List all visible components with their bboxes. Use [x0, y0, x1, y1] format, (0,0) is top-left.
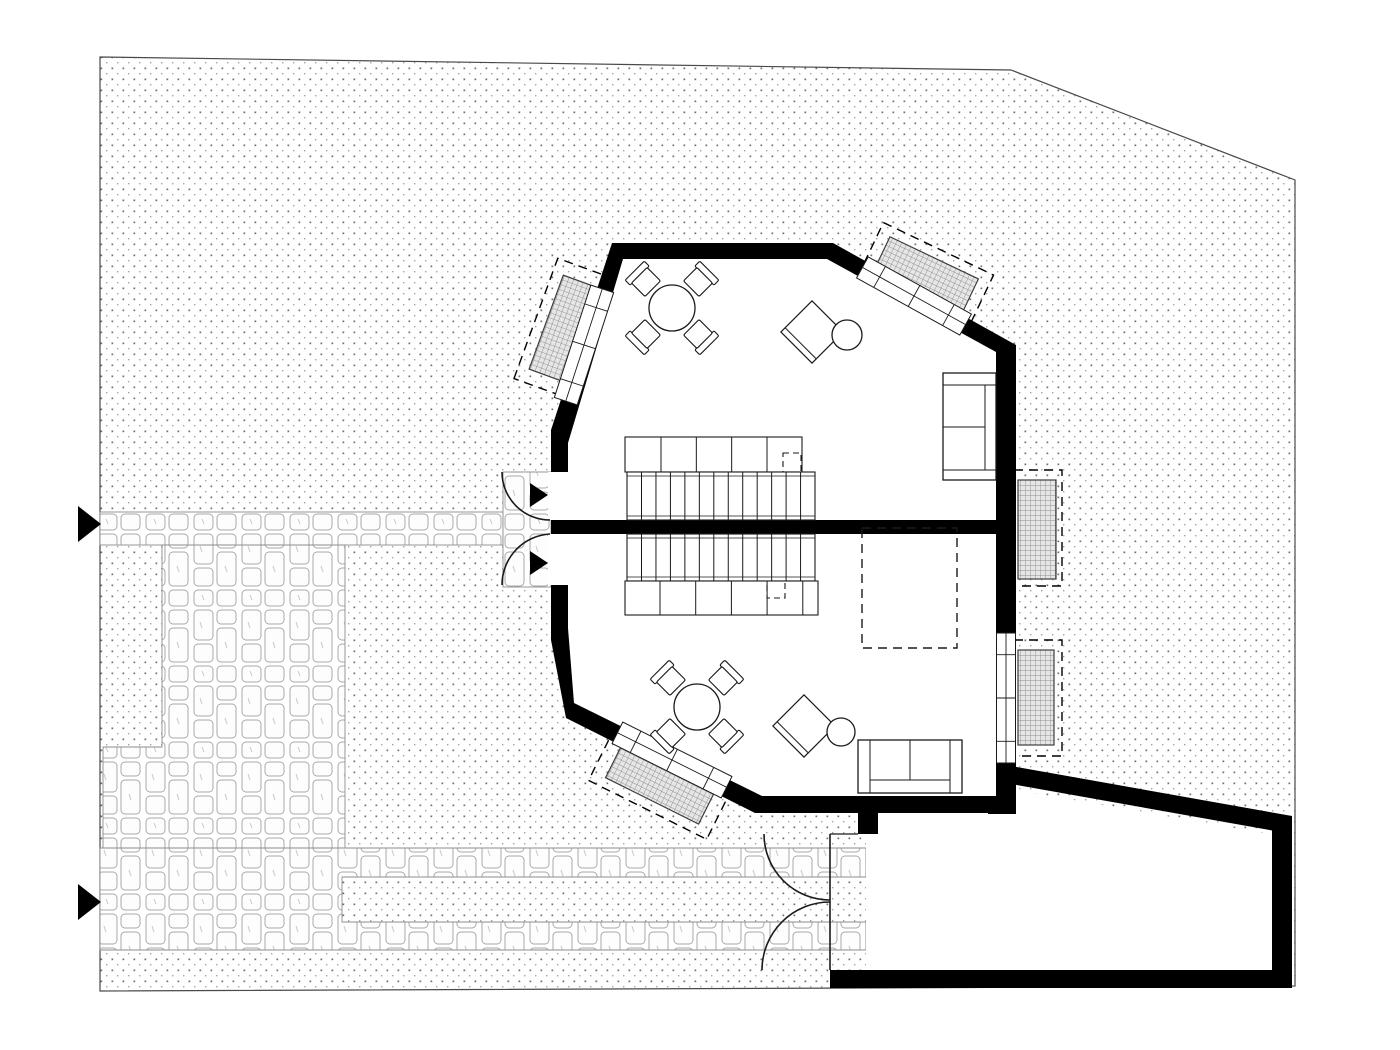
dining-table-lower	[674, 684, 720, 730]
dining-table-upper	[649, 285, 695, 331]
paving-entry-pad	[503, 472, 551, 587]
side-table-lower	[827, 718, 855, 746]
door-opening-upper	[548, 472, 570, 520]
side-table-upper	[832, 320, 862, 350]
paving-walkway-upper	[100, 512, 503, 545]
lightwell-right-upper-grate	[1018, 480, 1056, 579]
floor-plan	[0, 0, 1400, 1050]
stairs-lower	[627, 534, 815, 581]
closet-lower	[625, 581, 818, 615]
site-access-arrow-lower	[78, 884, 101, 920]
lightwell-right-lower-grate	[1018, 650, 1054, 745]
window-right	[997, 633, 1016, 763]
floor-plan-canvas	[0, 0, 1400, 1050]
door-opening-lower	[548, 534, 570, 585]
closet-upper	[625, 437, 802, 472]
garage-wall-bottom	[830, 970, 1292, 988]
stairs-upper	[627, 472, 815, 520]
wall-central-divider	[551, 520, 1016, 534]
garage-wall-right	[1272, 816, 1292, 988]
site-access-arrow-upper	[78, 506, 101, 542]
